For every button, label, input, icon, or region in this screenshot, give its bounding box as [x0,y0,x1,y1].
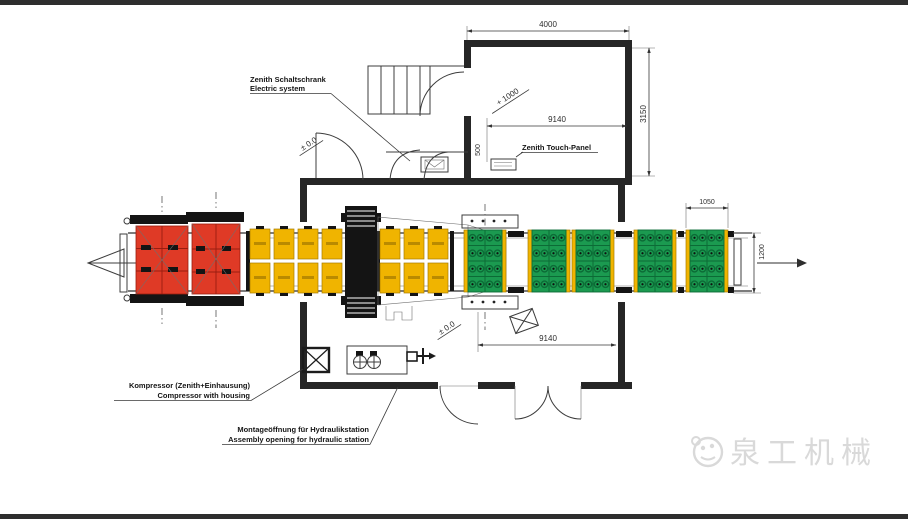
dim-500: 500 [475,144,482,156]
dimension-hall-length-top: 9140 [487,115,627,162]
dimension-pallet-width: 1050 [686,199,728,228]
brand-logo-icon [692,437,722,466]
dim-1050: 1050 [699,199,715,206]
touch-panel-label: Zenith Touch-Panel [522,143,591,152]
conveyor-yellow-left [246,226,342,296]
dimension-panel-offset: 500 [475,144,482,156]
electric-cabinet-callout: Zenith Schaltschrank Electric system [250,75,410,161]
conveyor-yellow-right [376,226,454,296]
tilted-pallet-marker [510,308,539,333]
dim-4000: 4000 [539,20,557,29]
plant-layout-screenshot: 4000 3150 + 1000 9140 500 Zenith Touch-P… [0,0,908,519]
lowerator-red-pallet [120,196,188,324]
dimension-room-depth: 3150 [632,48,655,176]
assembly-label-en: Assembly opening for hydraulic station [228,435,369,444]
electric-room [368,40,632,185]
watermark: 泉工机械 [692,437,878,470]
dim-3150: 3150 [639,105,648,123]
infeed-arrow [88,249,138,277]
dim-1200: 1200 [759,244,766,260]
brand-name: 泉工机械 [730,437,878,470]
compressor-label-en: Compressor with housing [157,391,250,400]
compressor-callout: Kompressor (Zenith+Einhausung) Compresso… [114,369,303,401]
valve-fitting [407,348,436,364]
staircase [368,66,464,114]
level-floor-bottom: ± 0.0 [432,317,461,340]
electric-cabinets [386,150,468,180]
bottom-bar [0,514,908,519]
plant-layout-drawing: 4000 3150 + 1000 9140 500 Zenith Touch-P… [0,0,908,519]
dim-9140-bottom: 9140 [539,334,557,343]
electric-cabinet-label-en: Electric system [250,84,305,93]
dimension-hall-length-bottom: 9140 [478,312,616,352]
level-room-label: + 1000 [487,81,529,113]
dimension-room-width: 4000 [467,20,629,40]
bottom-double-door [515,386,581,419]
block-machine [341,206,381,318]
level-plus-1000: + 1000 [495,86,521,107]
hall-top-door [316,133,363,180]
room-door-arc [420,72,464,116]
elevator-red-pallet [186,192,244,328]
green-block-pallets [462,204,741,330]
touch-panel: Zenith Touch-Panel [491,143,598,170]
compressor-label-de: Kompressor (Zenith+Einhausung) [129,381,251,390]
electric-cabinet-label-de: Zenith Schaltschrank [250,75,327,84]
assembly-label-de: Montageöffnung für Hydraulikstation [237,425,369,434]
level-floor-top: ± 0.0 [294,133,323,156]
dim-9140-top: 9140 [548,115,566,124]
top-bar [0,0,908,5]
bottom-single-door [440,386,478,424]
hydraulic-station-symbol [347,346,436,374]
